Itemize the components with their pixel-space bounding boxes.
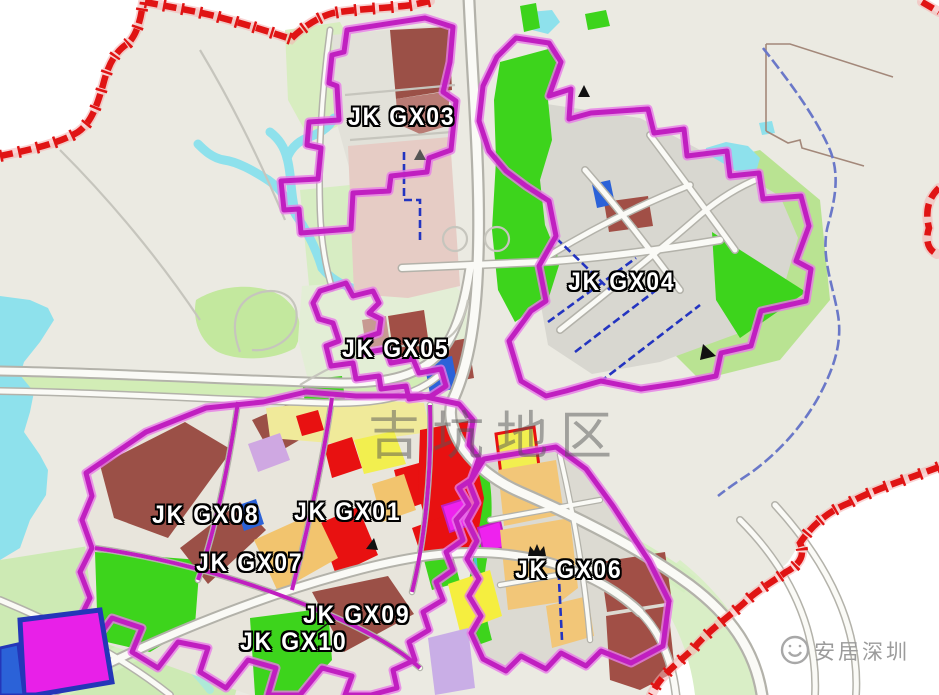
brand-watermark-text: 安居深圳 xyxy=(814,636,910,666)
zone-label-gx05: JK GX05 xyxy=(342,335,449,364)
zone-label-gx04: JK GX04 xyxy=(568,268,675,297)
zone-label-gx06: JK GX06 xyxy=(515,556,622,585)
planning-map: 吉坑地区 JK GX03 JK GX04 JK GX05 JK GX01 JK … xyxy=(0,0,939,695)
map-canvas xyxy=(0,0,939,695)
zone-label-gx01: JK GX01 xyxy=(294,498,401,527)
zone-label-gx08: JK GX08 xyxy=(152,501,259,530)
zone-label-gx10: JK GX10 xyxy=(240,628,347,657)
parcel-lavender xyxy=(428,628,475,695)
parcel-pink xyxy=(348,137,460,298)
zone-label-gx09: JK GX09 xyxy=(303,601,410,630)
zone-label-gx07: JK GX07 xyxy=(196,549,303,578)
zone-label-gx03: JK GX03 xyxy=(348,103,455,132)
center-watermark-text: 吉坑地区 xyxy=(368,394,624,469)
